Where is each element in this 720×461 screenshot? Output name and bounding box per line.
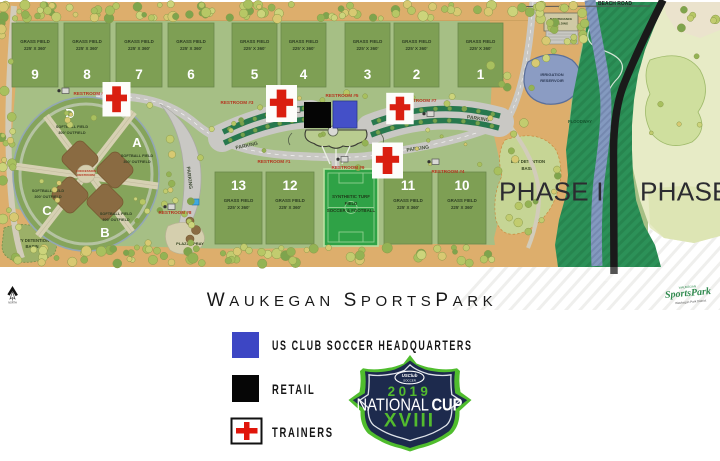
svg-text:RESTROOM #5: RESTROOM #5 bbox=[326, 93, 359, 98]
svg-text:RESTROOM #1: RESTROOM #1 bbox=[258, 159, 291, 164]
svg-text:GRASS FIELD: GRASS FIELD bbox=[289, 39, 319, 44]
svg-text:GRASS FIELD: GRASS FIELD bbox=[353, 39, 383, 44]
svg-text:9: 9 bbox=[31, 67, 39, 82]
svg-text:225' X 360': 225' X 360' bbox=[227, 205, 249, 210]
svg-text:300' OUTFIELD: 300' OUTFIELD bbox=[58, 131, 86, 135]
svg-text:4: 4 bbox=[300, 67, 308, 82]
svg-text:225' X 360': 225' X 360' bbox=[356, 46, 378, 51]
svg-text:2: 2 bbox=[413, 67, 421, 82]
svg-text:RESERVOIR: RESERVOIR bbox=[540, 78, 564, 83]
svg-text:FLOODWAY: FLOODWAY bbox=[568, 119, 592, 124]
svg-text:RESTROOM #3: RESTROOM #3 bbox=[221, 100, 254, 105]
svg-text:A: A bbox=[132, 135, 142, 150]
svg-text:SOCCER: SOCCER bbox=[403, 379, 417, 383]
svg-text:300' OUTFIELD: 300' OUTFIELD bbox=[102, 218, 130, 222]
svg-text:GRASS FIELD: GRASS FIELD bbox=[224, 198, 254, 203]
svg-text:SOFTBALL FIELD: SOFTBALL FIELD bbox=[121, 154, 153, 158]
svg-text:RESTROOM #8: RESTROOM #8 bbox=[159, 210, 192, 215]
svg-text:225' X 360': 225' X 360' bbox=[243, 46, 265, 51]
svg-text:7: 7 bbox=[135, 67, 143, 82]
svg-text:GRASS FIELD: GRASS FIELD bbox=[20, 39, 50, 44]
svg-text:PHASE I: PHASE I bbox=[499, 177, 604, 207]
svg-text:WAUKEGAN SPORTSPARK: WAUKEGAN SPORTSPARK bbox=[207, 290, 498, 311]
svg-text:GRASS FIELD: GRASS FIELD bbox=[240, 39, 270, 44]
svg-text:GRASS FIELD: GRASS FIELD bbox=[466, 39, 496, 44]
svg-text:SOFTBALL FIELD: SOFTBALL FIELD bbox=[32, 189, 64, 193]
svg-text:225' X 360': 225' X 360' bbox=[451, 205, 473, 210]
svg-text:SYNTHETIC TURF: SYNTHETIC TURF bbox=[332, 194, 370, 199]
svg-text:225' X 360': 225' X 360' bbox=[76, 46, 98, 51]
svg-text:IRRIGATION: IRRIGATION bbox=[540, 72, 563, 77]
svg-text:XVIII: XVIII bbox=[384, 411, 435, 432]
svg-text:GRASS FIELD: GRASS FIELD bbox=[447, 198, 477, 203]
svg-text:B: B bbox=[100, 225, 109, 240]
svg-text:RESTROOM #2: RESTROOM #2 bbox=[74, 91, 107, 96]
svg-text:SOCCER & FOOTBALL: SOCCER & FOOTBALL bbox=[327, 208, 376, 213]
svg-text:225' X 360': 225' X 360' bbox=[469, 46, 491, 51]
svg-text:FIELD: FIELD bbox=[345, 201, 358, 206]
svg-text:PHASE: PHASE bbox=[640, 177, 720, 207]
svg-text:GRASS FIELD: GRASS FIELD bbox=[402, 39, 432, 44]
svg-text:RESTROOM: RESTROOM bbox=[77, 173, 95, 177]
svg-text:225' X 360': 225' X 360' bbox=[128, 46, 150, 51]
svg-text:300' OUTFIELD: 300' OUTFIELD bbox=[123, 160, 151, 164]
svg-text:RESTROOM #9: RESTROOM #9 bbox=[332, 165, 365, 170]
svg-text:3: 3 bbox=[364, 67, 372, 82]
svg-text:C: C bbox=[42, 203, 52, 218]
svg-text:NORTH: NORTH bbox=[8, 302, 17, 305]
svg-text:GRASS FIELD: GRASS FIELD bbox=[176, 39, 206, 44]
svg-text:11: 11 bbox=[401, 178, 416, 193]
svg-text:TRAINERS: TRAINERS bbox=[272, 425, 334, 440]
svg-text:225' X 360': 225' X 360' bbox=[279, 205, 301, 210]
svg-text:225' X 360': 225' X 360' bbox=[405, 46, 427, 51]
svg-text:225' X 360': 225' X 360' bbox=[24, 46, 46, 51]
svg-text:1: 1 bbox=[477, 67, 485, 82]
svg-text:SOFTBALL FIELD: SOFTBALL FIELD bbox=[100, 212, 132, 216]
svg-text:10: 10 bbox=[454, 178, 469, 193]
svg-text:GRASS FIELD: GRASS FIELD bbox=[393, 198, 423, 203]
svg-text:225' X 360': 225' X 360' bbox=[292, 46, 314, 51]
svg-text:225' X 360': 225' X 360' bbox=[180, 46, 202, 51]
svg-text:8: 8 bbox=[83, 67, 91, 82]
svg-text:RESTROOM #4: RESTROOM #4 bbox=[432, 169, 465, 174]
svg-text:GRASS FIELD: GRASS FIELD bbox=[72, 39, 102, 44]
svg-text:225' X 360': 225' X 360' bbox=[397, 205, 419, 210]
svg-text:RETAIL: RETAIL bbox=[272, 382, 315, 397]
svg-text:GRASS FIELD: GRASS FIELD bbox=[275, 198, 305, 203]
svg-text:13: 13 bbox=[231, 178, 247, 193]
svg-text:GRASS FIELD: GRASS FIELD bbox=[124, 39, 154, 44]
svg-text:5: 5 bbox=[251, 67, 259, 82]
svg-text:12: 12 bbox=[282, 178, 297, 193]
svg-text:USClub: USClub bbox=[402, 373, 418, 378]
svg-text:US CLUB SOCCER HEADQUARTERS: US CLUB SOCCER HEADQUARTERS bbox=[272, 339, 472, 353]
svg-text:6: 6 bbox=[187, 67, 195, 82]
